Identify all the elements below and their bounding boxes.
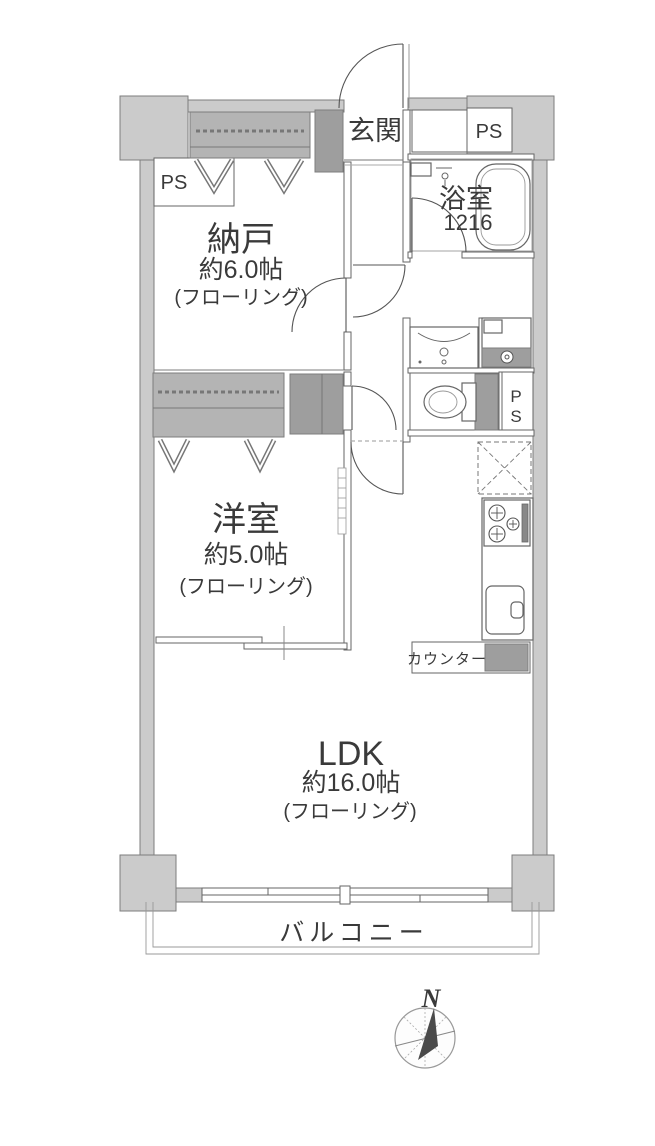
pillar-top-left bbox=[120, 96, 188, 160]
wall-shelf-ticks bbox=[338, 468, 346, 534]
ps-top-right-label: PS bbox=[476, 121, 503, 143]
bath-faucet-icon bbox=[411, 163, 452, 186]
storage-flooring-label: (フローリング) bbox=[174, 286, 307, 309]
western-flooring-label: (フローリング) bbox=[179, 575, 312, 598]
ldk-door bbox=[351, 442, 403, 494]
ldk-flooring-label: (フローリング) bbox=[283, 800, 416, 823]
western-door bbox=[352, 386, 396, 430]
ps-top-left-label: PS bbox=[161, 172, 188, 194]
western-closet bbox=[153, 373, 343, 468]
pillar-bottom-left bbox=[120, 855, 176, 911]
compass-north-label: N bbox=[421, 984, 442, 1013]
storage-size-label: 約6.0帖 bbox=[199, 256, 284, 284]
hanger-icon bbox=[160, 440, 274, 468]
counter-label: カウンター bbox=[407, 651, 487, 668]
washroom-door bbox=[353, 265, 405, 317]
shoe-cabinet bbox=[412, 110, 467, 152]
floorplan-drawing: 玄関 PS PS 納戸 約6.0帖 (フローリング) 浴室 1216 P S 洋… bbox=[0, 0, 655, 1146]
ps-mid-p-label: P bbox=[510, 387, 521, 406]
refrigerator-space-icon bbox=[478, 442, 531, 494]
sliding-window bbox=[202, 886, 488, 904]
sliding-partition bbox=[156, 626, 347, 660]
ps-mid-s-label: S bbox=[510, 407, 521, 426]
kitchen-area bbox=[412, 442, 533, 673]
storage-closet bbox=[190, 112, 310, 190]
washroom-area bbox=[353, 265, 531, 368]
stove-icon bbox=[484, 500, 530, 546]
western-name-label: 洋室 bbox=[212, 501, 280, 539]
bathroom-size-label: 1216 bbox=[444, 210, 493, 235]
ldk-size-label: 約16.0帖 bbox=[302, 769, 401, 797]
vanity-sink-icon bbox=[410, 327, 478, 368]
toilet-icon bbox=[424, 383, 476, 421]
pillar-bottom-right bbox=[512, 855, 554, 911]
compass bbox=[395, 1008, 455, 1068]
ldk-name-label: LDK bbox=[318, 735, 384, 773]
western-size-label: 約5.0帖 bbox=[204, 541, 289, 569]
entrance-door bbox=[339, 44, 409, 108]
entrance-label: 玄関 bbox=[348, 116, 402, 146]
washer-space-icon bbox=[482, 318, 531, 367]
kitchen-sink-icon bbox=[486, 586, 524, 634]
floorplan-canvas: 玄関 PS PS 納戸 約6.0帖 (フローリング) 浴室 1216 P S 洋… bbox=[0, 0, 655, 1146]
storage-name-label: 納戸 bbox=[207, 221, 275, 259]
toilet-duct-block bbox=[475, 374, 498, 430]
wall-block-entrance bbox=[315, 110, 343, 172]
balcony-label: バルコニー bbox=[279, 919, 429, 947]
